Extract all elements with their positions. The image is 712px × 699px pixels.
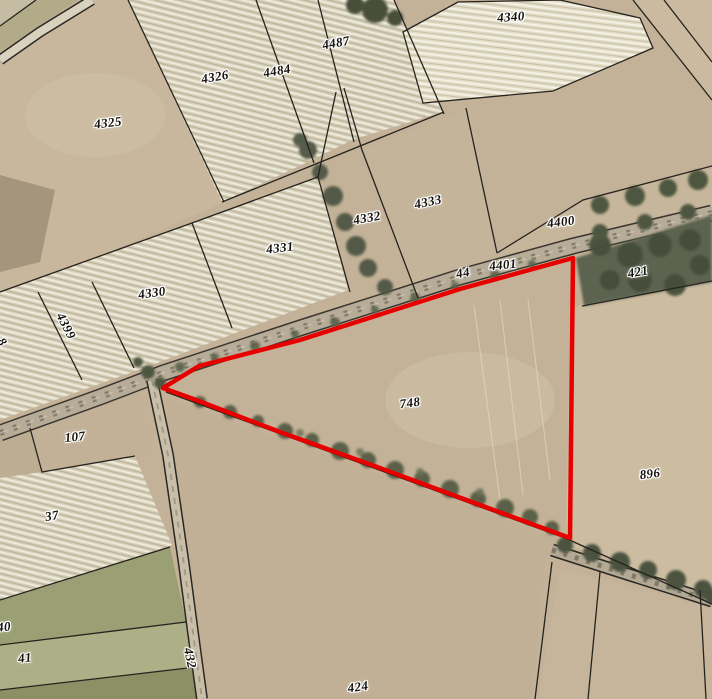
map-canvas[interactable]: 4340448744844326432543334332433144004401… xyxy=(0,0,712,699)
map-svg xyxy=(0,0,712,699)
